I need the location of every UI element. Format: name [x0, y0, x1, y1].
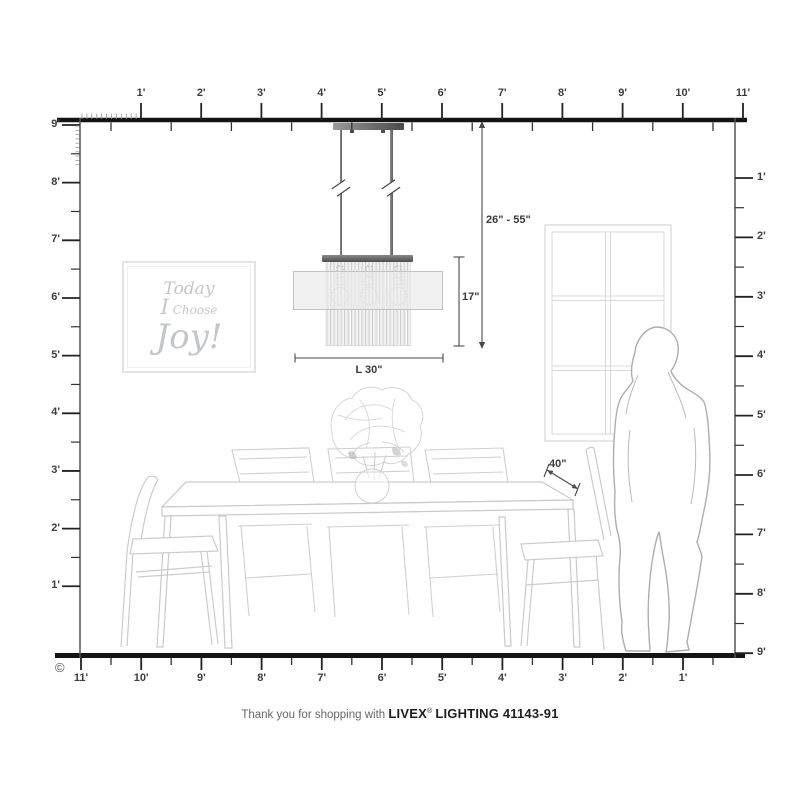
ruler-bottom-label: 10'	[128, 672, 154, 685]
ruler-right-label: 1'	[757, 171, 783, 184]
ruler-top-label: 3'	[248, 87, 274, 100]
ruler-top-label: 9'	[610, 87, 636, 100]
footer-product: LIGHTING 41143-91	[435, 706, 558, 721]
ruler-left-label: 3'	[34, 464, 60, 477]
footer-brand: LIVEX	[388, 706, 427, 721]
ruler-right-label: 5'	[757, 409, 783, 422]
ruler-left-label: 4'	[34, 406, 60, 419]
ruler-right-label: 4'	[757, 349, 783, 362]
ruler-top-label: 4'	[309, 87, 335, 100]
ruler-right-label: 7'	[757, 527, 783, 540]
ruler-bottom-label: 6'	[369, 672, 395, 685]
copyright-symbol: ©	[55, 660, 65, 675]
ruler-left-label: 7'	[34, 233, 60, 246]
ruler-bottom-label: 9'	[188, 672, 214, 685]
registered-mark-icon: ®	[427, 708, 432, 715]
ruler-right-label: 8'	[757, 587, 783, 600]
ruler-bottom-label: 1'	[670, 672, 696, 685]
ruler-left-label: 6'	[34, 291, 60, 304]
ruler-bottom-label: 2'	[610, 672, 636, 685]
ruler-left-label: 2'	[34, 522, 60, 535]
ruler-left-label: 1'	[34, 579, 60, 592]
ruler-top-label: 10'	[670, 87, 696, 100]
ruler-top-label: 7'	[489, 87, 515, 100]
footer-caption: Thank you for shopping with LIVEX® LIGHT…	[0, 706, 800, 721]
ruler-left-label: 9'	[34, 118, 60, 131]
ruler-bottom-label: 7'	[309, 672, 335, 685]
ruler-bottom-label: 11'	[68, 672, 94, 685]
ruler-left-label: 5'	[34, 349, 60, 362]
ruler-right-label: 6'	[757, 468, 783, 481]
diagram-canvas: Today I Choose Joy!	[0, 0, 800, 800]
ruler-bottom-label: 4'	[489, 672, 515, 685]
ruler-bottom-label: 3'	[550, 672, 576, 685]
ruler-top-label: 6'	[429, 87, 455, 100]
ruler-top-label: 1'	[128, 87, 154, 100]
ruler-top-label: 2'	[188, 87, 214, 100]
ruler-left-label: 8'	[34, 176, 60, 189]
ruler-bottom-label: 5'	[429, 672, 455, 685]
ruler-right-label: 3'	[757, 290, 783, 303]
ruler-top-label: 8'	[549, 87, 575, 100]
ruler-top-label: 11'	[730, 87, 756, 100]
ruler-top-label: 5'	[369, 87, 395, 100]
ruler-bottom-label: 8'	[249, 672, 275, 685]
ruler-right-label: 9'	[757, 646, 783, 659]
ruler-right-label: 2'	[757, 230, 783, 243]
footer-message: Thank you for shopping with	[241, 709, 385, 721]
